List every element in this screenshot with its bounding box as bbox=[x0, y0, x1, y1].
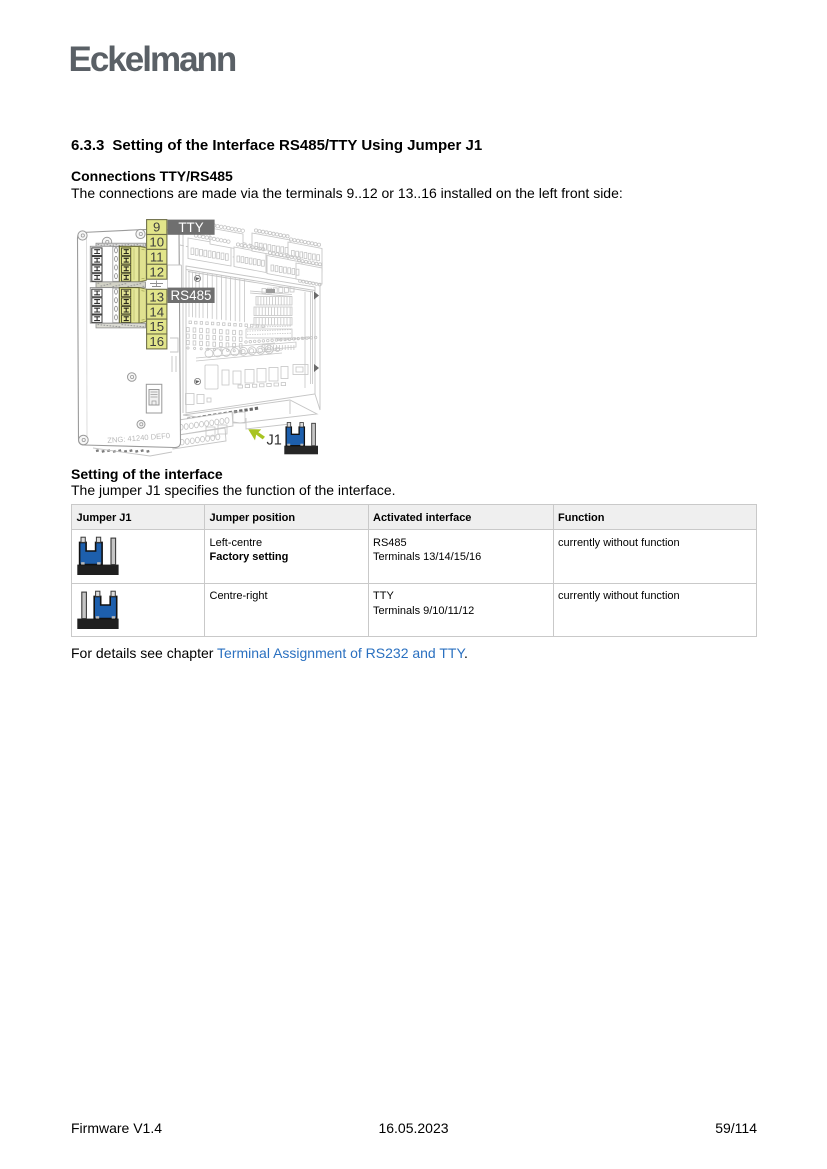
svg-text:11: 11 bbox=[150, 250, 164, 265]
svg-text:J1: J1 bbox=[267, 433, 282, 449]
svg-text:16: 16 bbox=[149, 334, 164, 349]
svg-text:13: 13 bbox=[149, 289, 164, 304]
svg-text:9: 9 bbox=[153, 220, 160, 235]
svg-text:14: 14 bbox=[149, 304, 164, 319]
svg-text:15: 15 bbox=[149, 319, 164, 334]
svg-text:RS485: RS485 bbox=[171, 288, 212, 303]
svg-text:10: 10 bbox=[149, 235, 164, 250]
svg-text:12: 12 bbox=[149, 264, 164, 279]
svg-text:TTY: TTY bbox=[178, 220, 203, 235]
